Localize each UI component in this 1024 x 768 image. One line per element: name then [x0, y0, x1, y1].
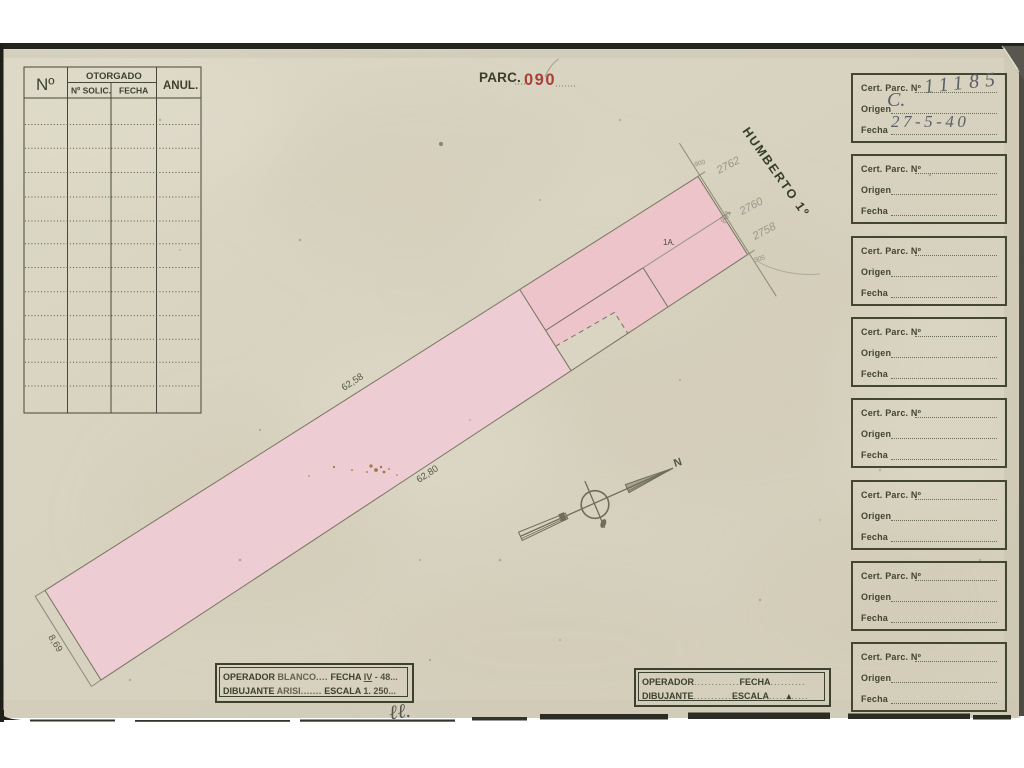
svg-text:ANUL.: ANUL. — [163, 80, 198, 92]
svg-text:PARC.: PARC. — [479, 70, 521, 85]
svg-text:Nº: Nº — [36, 75, 55, 94]
svg-text:Nº SOLIC.: Nº SOLIC. — [71, 86, 111, 96]
svg-text:OTORGADO: OTORGADO — [86, 71, 142, 82]
svg-text:FECHA: FECHA — [119, 86, 148, 96]
svg-text:090: 090 — [524, 71, 556, 89]
